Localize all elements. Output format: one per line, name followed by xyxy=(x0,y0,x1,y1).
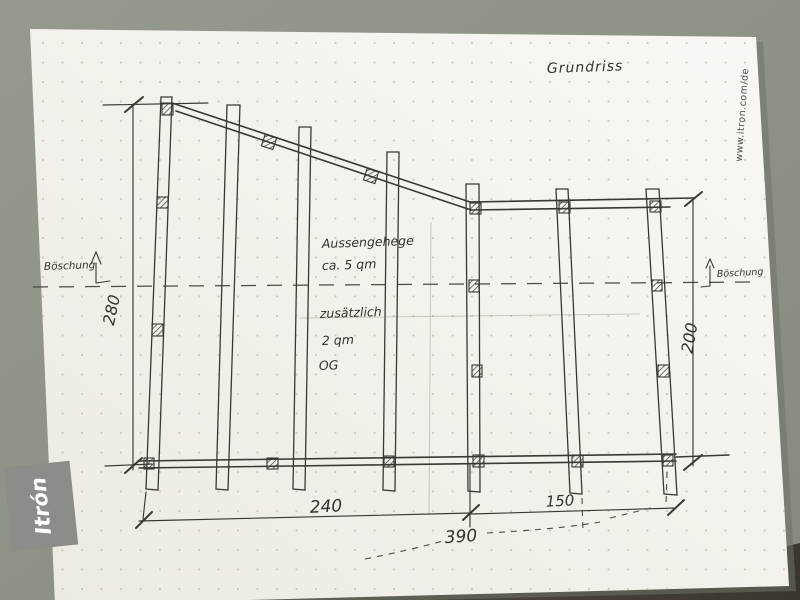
dimension-390-label: 390 xyxy=(444,526,478,548)
joint-hatch xyxy=(658,365,669,377)
itron-logo: Itrón xyxy=(4,461,78,551)
joint-hatch xyxy=(559,202,570,213)
joint-hatch xyxy=(663,455,673,466)
additional-note-line2: 2 qm xyxy=(322,332,355,348)
joint-hatch xyxy=(267,458,278,469)
slope-left-label: Böschung xyxy=(44,259,96,273)
page-title: Grundriss xyxy=(547,58,624,77)
dimension-240-label: 240 xyxy=(309,496,342,518)
dimension-150-label: 150 xyxy=(545,491,575,510)
joint-hatch xyxy=(652,280,662,291)
joint-hatch xyxy=(470,203,481,214)
additional-note-line3: OG xyxy=(319,357,339,373)
additional-note-line1: zusätzlich xyxy=(319,304,382,321)
joint-hatch xyxy=(162,103,173,115)
joint-hatch xyxy=(469,280,479,292)
joint-hatch xyxy=(650,201,661,212)
joint-hatch xyxy=(473,455,484,467)
enclosure-note-line2: ca. 5 qm xyxy=(322,256,377,273)
joint-hatch xyxy=(472,365,482,377)
photo-of-floor-plan: 280 200 240 150 390 Böschun xyxy=(0,0,800,600)
joint-hatch xyxy=(157,197,168,208)
joint-hatch xyxy=(152,324,163,336)
scene: 280 200 240 150 390 Böschun xyxy=(0,0,800,600)
joint-hatch xyxy=(144,458,154,469)
joint-hatch xyxy=(384,456,394,467)
